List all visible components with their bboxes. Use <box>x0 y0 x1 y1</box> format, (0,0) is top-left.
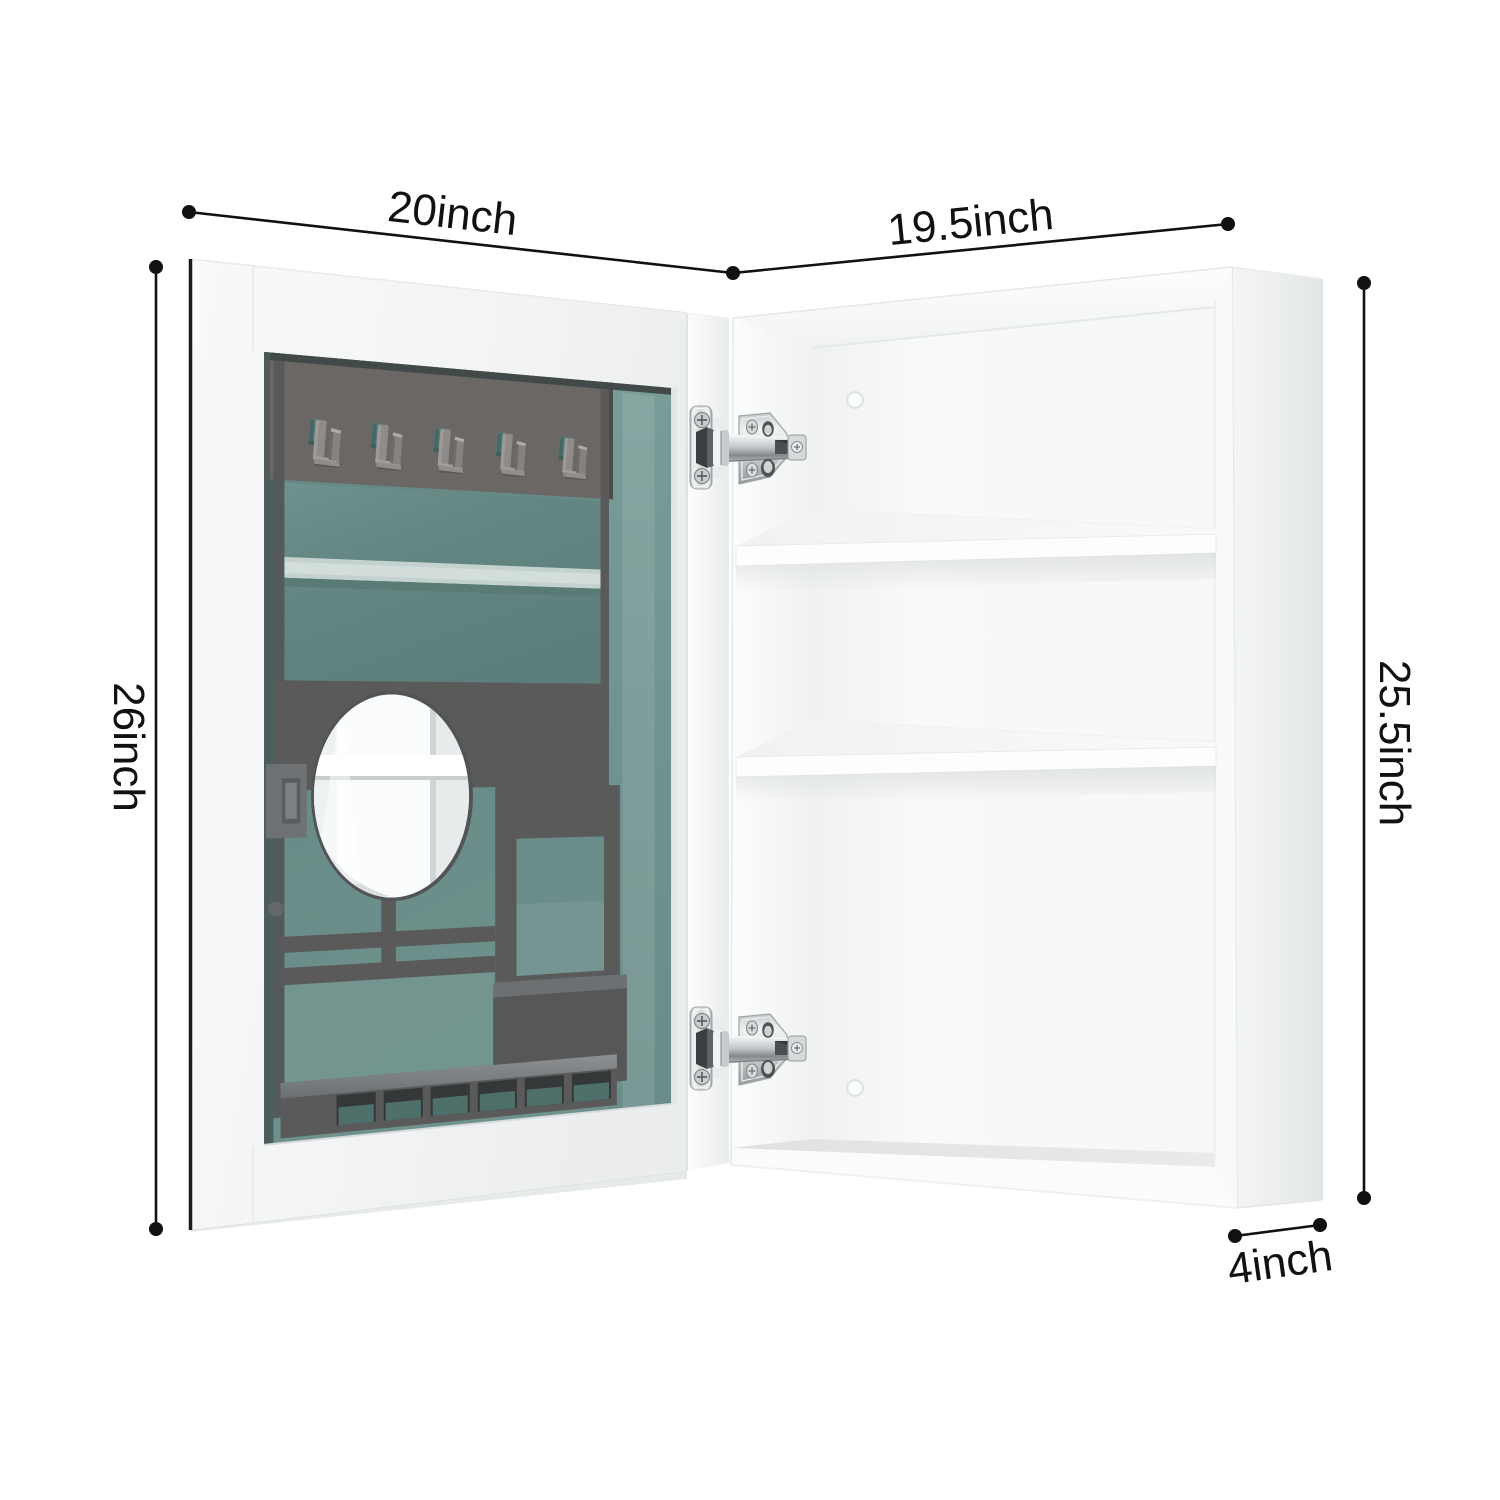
svg-text:26inch: 26inch <box>104 682 153 812</box>
svg-text:25.5inch: 25.5inch <box>1370 660 1419 826</box>
